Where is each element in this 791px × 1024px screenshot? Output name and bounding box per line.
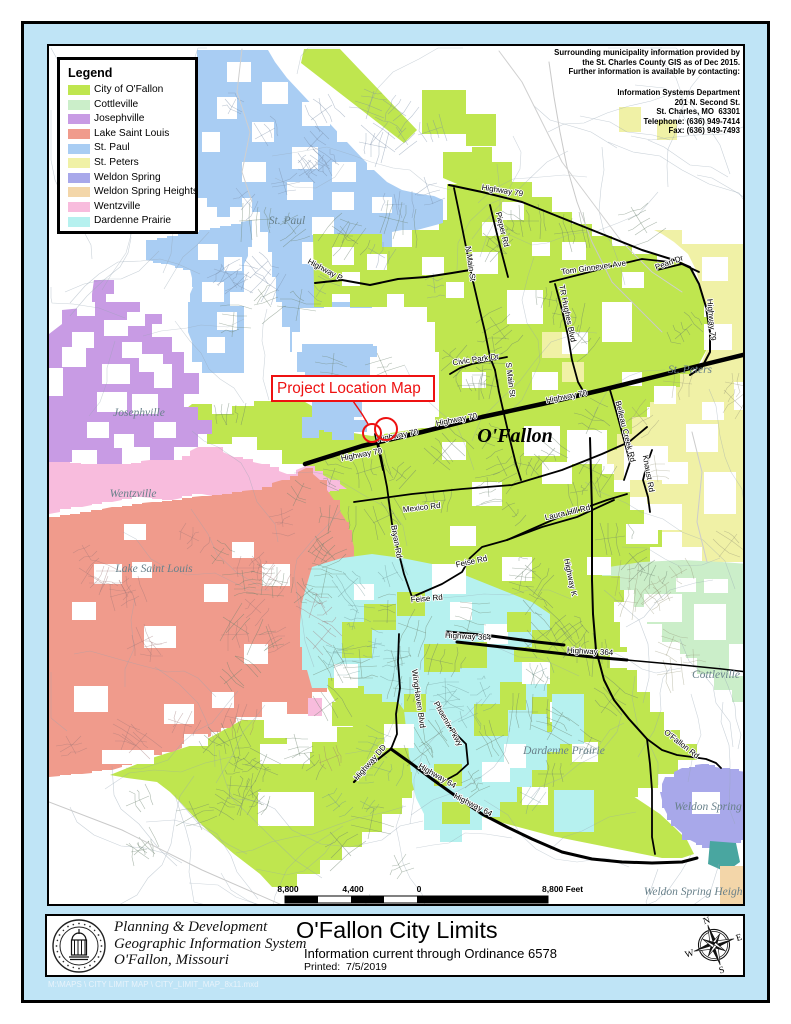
svg-text:E: E [735, 933, 744, 944]
svg-text:4,400: 4,400 [342, 884, 364, 894]
svg-text:St. Peters: St. Peters [668, 364, 713, 376]
svg-text:Josephville: Josephville [113, 407, 165, 419]
svg-text:Weldon Spring: Weldon Spring [674, 801, 742, 813]
svg-text:W: W [684, 948, 696, 960]
svg-text:Weldon Spring Heights: Weldon Spring Heights [644, 886, 743, 898]
svg-text:Project Location Map: Project Location Map [277, 380, 421, 397]
svg-text:Wentzville: Wentzville [110, 488, 157, 500]
svg-text:N: N [702, 916, 712, 928]
svg-text:8,800 Feet: 8,800 Feet [542, 884, 583, 894]
svg-text:St. Paul: St. Paul [269, 215, 305, 227]
svg-text:Cottleville: Cottleville [692, 669, 740, 681]
svg-text:8,800: 8,800 [277, 884, 299, 894]
svg-text:S: S [718, 965, 726, 976]
svg-text:0: 0 [417, 884, 422, 894]
svg-text:Lake Saint Louis: Lake Saint Louis [114, 563, 193, 575]
svg-text:O'Fallon: O'Fallon [477, 425, 553, 447]
svg-text:Dardenne Prairie: Dardenne Prairie [522, 745, 605, 757]
